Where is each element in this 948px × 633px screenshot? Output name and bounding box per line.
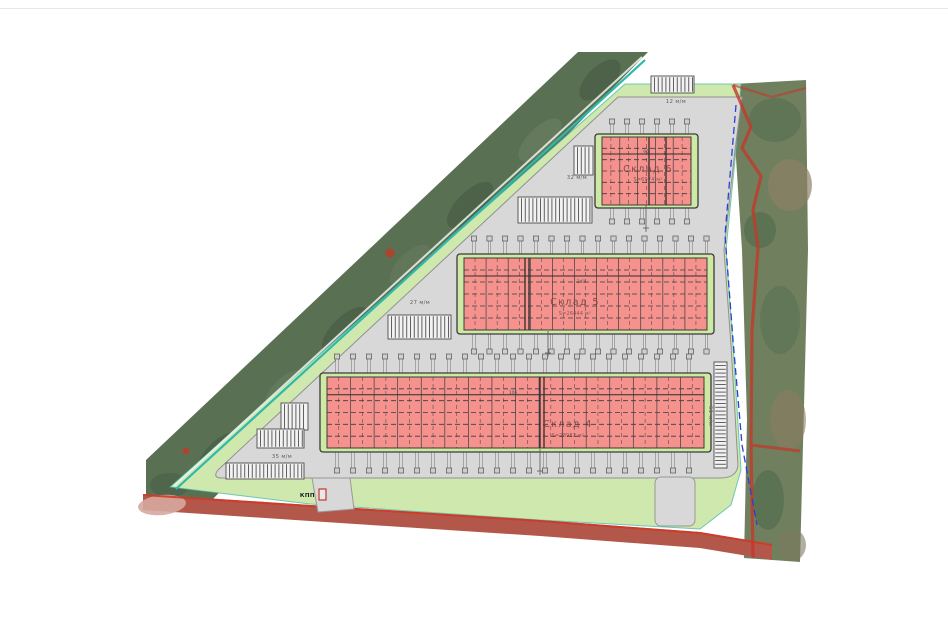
red-marker-dot bbox=[183, 448, 190, 455]
site-plan-svg: Склад 6 S=6974 м² 96 Склад 5 S=26444 м² … bbox=[0, 0, 948, 633]
warehouse-5-area: S=26444 м² bbox=[559, 311, 591, 317]
parking-label-sklad6: 32 м/м bbox=[567, 175, 587, 181]
parking-label-right: 61 м/м bbox=[707, 406, 713, 426]
parking-strip bbox=[574, 146, 593, 175]
site-plan-screenshot: Склад 6 S=6974 м² 96 Склад 5 S=26444 м² … bbox=[0, 0, 948, 633]
parking-label-sklad5: 27 м/м bbox=[410, 300, 430, 306]
parking-strip bbox=[257, 429, 304, 448]
warehouse-sklad-4: Склад 4 S=28982 м² 106 bbox=[320, 373, 711, 452]
secondary-road-stub bbox=[655, 477, 695, 526]
entrance-road bbox=[312, 478, 354, 512]
warehouse-sklad-5: Склад 5 S=26444 м² 240 bbox=[457, 254, 714, 334]
checkpoint-building bbox=[319, 489, 326, 500]
warehouse-4-area: S=28982 м² bbox=[552, 433, 584, 439]
parking-strip bbox=[714, 362, 727, 468]
warehouse-4-label: Склад 4 bbox=[543, 419, 593, 430]
warehouse-4-dim: 106 bbox=[509, 390, 518, 396]
parking-label-sklad4: 35 м/м bbox=[272, 454, 292, 460]
parking-strip bbox=[388, 315, 451, 339]
warehouse-sklad-6: Склад 6 S=6974 м² 96 bbox=[595, 134, 698, 208]
red-marker-dot bbox=[386, 249, 395, 258]
top-divider bbox=[0, 8, 948, 9]
parking-strip bbox=[651, 76, 694, 93]
warehouse-6-dim: 96 bbox=[643, 149, 649, 155]
warehouse-6-area: S=6974 м² bbox=[633, 177, 662, 183]
parking-strip bbox=[518, 197, 592, 223]
warehouse-6-label: Склад 6 bbox=[623, 164, 673, 175]
parking-strip bbox=[226, 463, 304, 479]
parking-strip bbox=[281, 403, 308, 430]
parking-label-top: 12 м/м bbox=[666, 99, 686, 105]
warehouse-5-dim: 240 bbox=[577, 279, 586, 285]
warehouse-5-label: Склад 5 bbox=[550, 297, 600, 308]
checkpoint-label: КПП bbox=[300, 493, 315, 499]
